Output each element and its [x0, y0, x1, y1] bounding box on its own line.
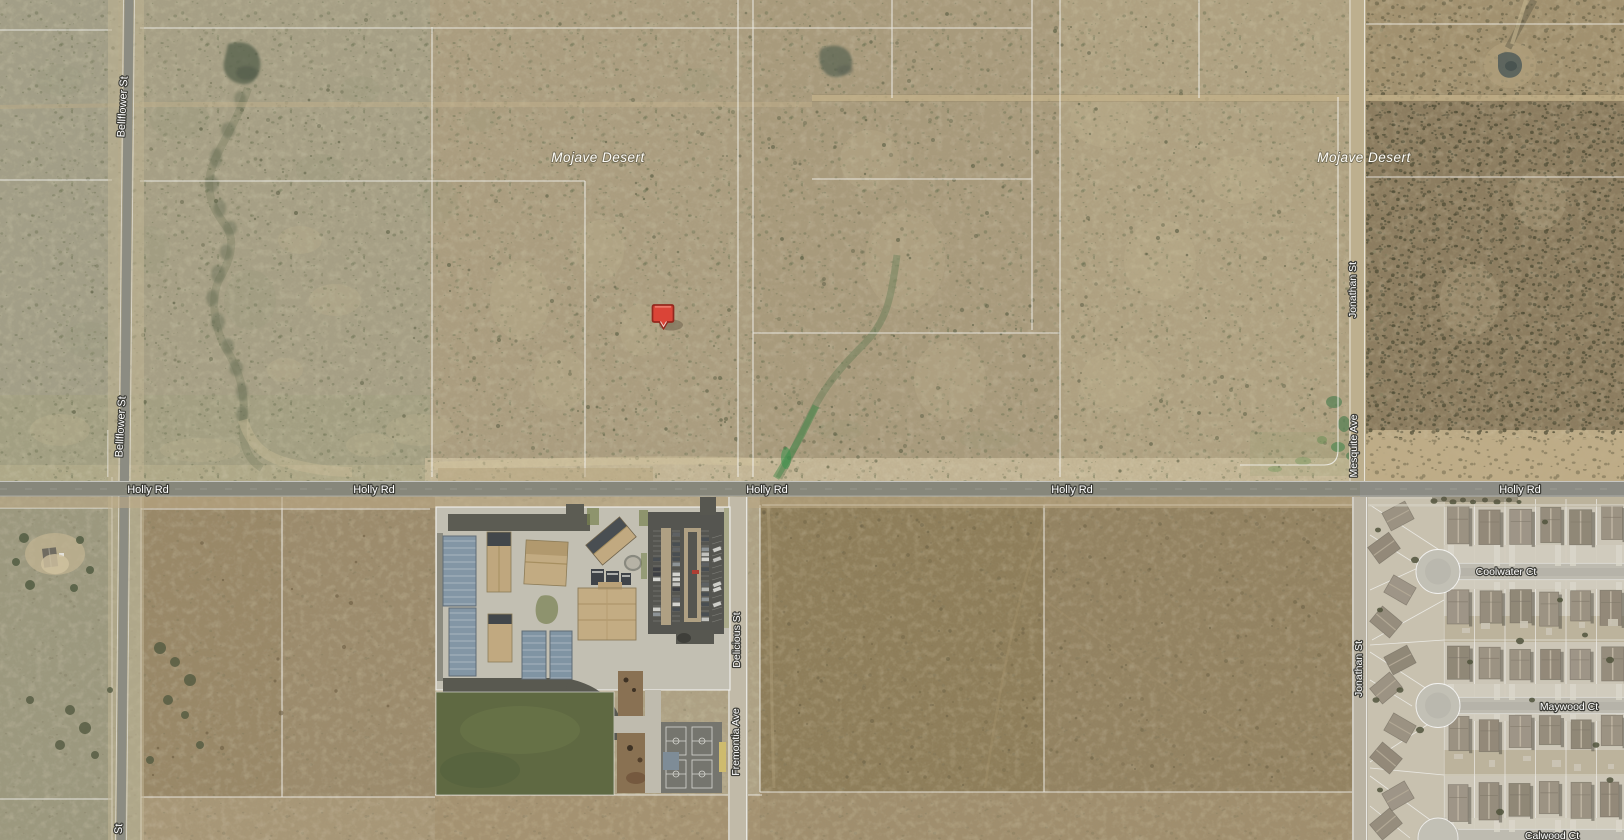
svg-text:Mojave Desert: Mojave Desert [551, 150, 645, 165]
svg-text:Calwood Ct: Calwood Ct [1525, 830, 1579, 840]
svg-text:Holly Rd: Holly Rd [353, 484, 395, 496]
svg-text:Mojave Desert: Mojave Desert [1317, 150, 1411, 165]
svg-text:Holly Rd: Holly Rd [1051, 484, 1093, 496]
svg-text:Holly Rd: Holly Rd [1499, 484, 1541, 496]
svg-text:Jonathan St: Jonathan St [1353, 641, 1365, 697]
svg-text:Jonathan St: Jonathan St [1347, 262, 1359, 318]
svg-text:Maywood Ct: Maywood Ct [1540, 701, 1598, 713]
svg-text:Holly Rd: Holly Rd [746, 484, 788, 496]
svg-text:Fremontia Ave: Fremontia Ave [730, 708, 742, 776]
svg-text:St: St [113, 823, 126, 834]
svg-text:Coolwater Ct: Coolwater Ct [1476, 566, 1537, 578]
svg-text:Mesquite Ave: Mesquite Ave [1348, 414, 1360, 477]
svg-text:Delicious St: Delicious St [731, 612, 743, 668]
svg-text:Holly Rd: Holly Rd [127, 484, 169, 496]
